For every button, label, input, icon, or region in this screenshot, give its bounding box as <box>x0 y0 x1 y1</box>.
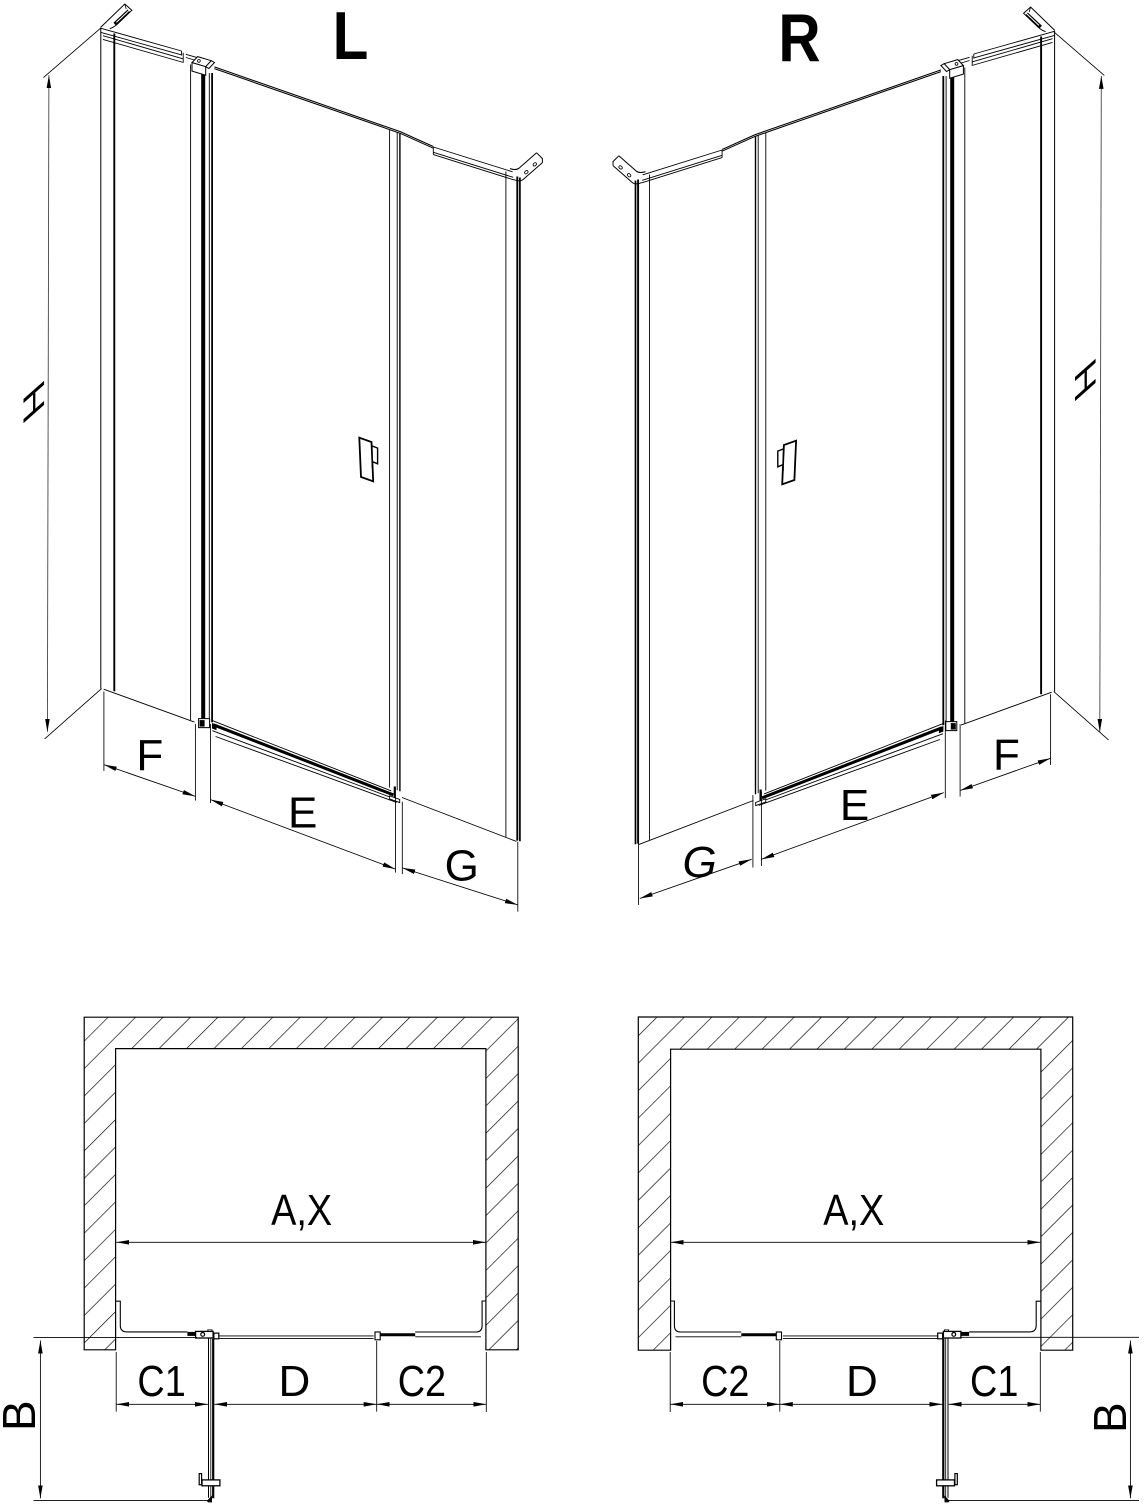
svg-text:A,X: A,X <box>271 1185 332 1234</box>
svg-text:C2: C2 <box>398 1356 446 1405</box>
svg-text:F: F <box>993 731 1020 780</box>
svg-text:E: E <box>840 781 869 830</box>
svg-text:C1: C1 <box>137 1356 185 1405</box>
svg-text:C2: C2 <box>701 1356 749 1405</box>
svg-text:B: B <box>0 1400 45 1431</box>
svg-text:D: D <box>279 1357 311 1406</box>
svg-text:E: E <box>288 789 317 838</box>
svg-text:D: D <box>846 1357 878 1406</box>
svg-text:F: F <box>136 731 163 780</box>
svg-text:A,X: A,X <box>823 1185 884 1234</box>
svg-text:R: R <box>778 1 820 76</box>
svg-text:C1: C1 <box>970 1356 1018 1405</box>
svg-text:B: B <box>1084 1402 1136 1433</box>
svg-text:L: L <box>333 0 369 74</box>
svg-text:G: G <box>682 838 716 887</box>
svg-text:G: G <box>445 842 479 891</box>
